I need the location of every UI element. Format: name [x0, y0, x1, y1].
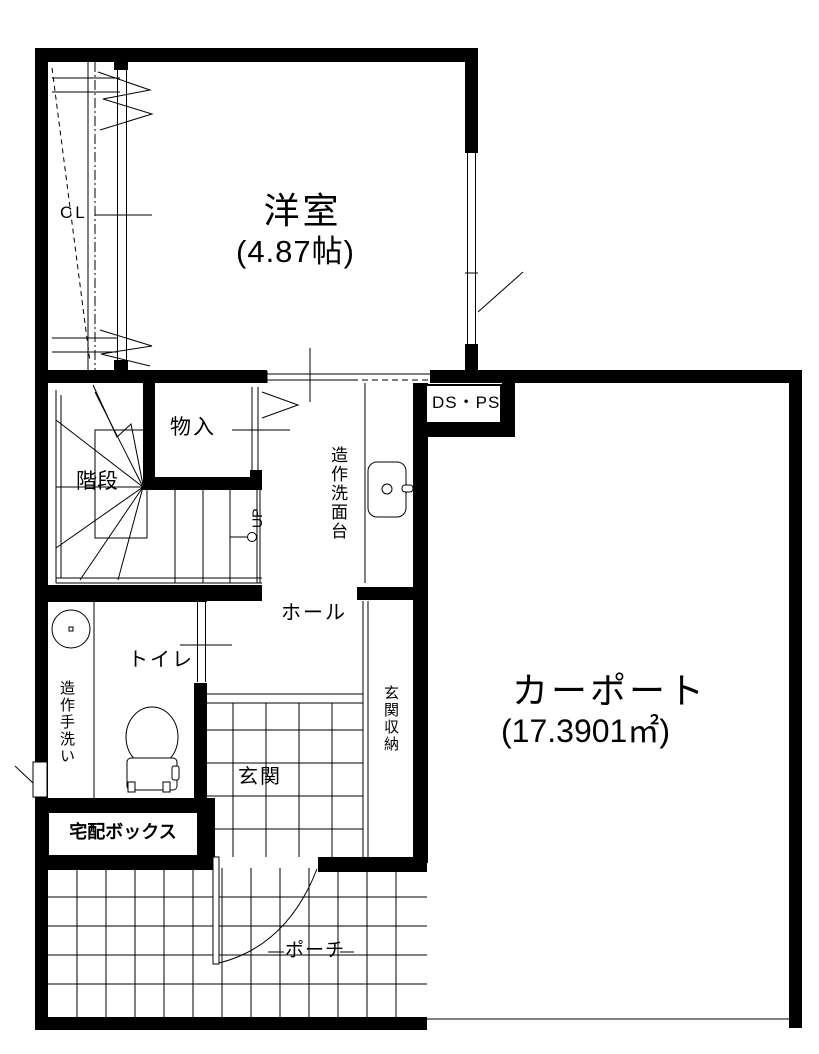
washstand-label: 造作洗面台 — [329, 446, 346, 541]
toilet-handle — [172, 766, 179, 780]
closet-label: CL — [60, 204, 88, 221]
toilet-door — [198, 600, 206, 682]
storage-folding-symbol — [262, 392, 298, 418]
wall-closet-stub-top — [114, 62, 128, 70]
stairs-up-label: UP — [250, 509, 264, 528]
wall-storage-left — [143, 383, 155, 490]
tile-grid-porch — [48, 868, 427, 1017]
washbasin-drain — [382, 484, 392, 494]
entrance-step-line — [207, 694, 363, 703]
carport-size: (17.3901㎡) — [501, 715, 670, 747]
toilet-window-leader — [15, 766, 33, 783]
toilet-side-window — [33, 762, 47, 797]
hand-wash-label: 造作手洗い — [59, 680, 74, 765]
western-room-size: (4.87帖) — [213, 236, 378, 267]
wall-dsps-bottom — [413, 423, 512, 437]
wall-storage-bottom — [143, 477, 262, 490]
wall-top — [35, 48, 478, 62]
room-window-cap-bottom — [465, 344, 478, 347]
hand-wash-drain — [69, 627, 73, 631]
toilet-foot-left — [128, 782, 135, 792]
wall-hall-right — [413, 383, 428, 863]
room-window — [465, 152, 478, 345]
wall-mid-left — [35, 370, 267, 383]
floor-plan: CL 洋室 (4.87帖) 物入 階段 造作洗面台 DS・PS UP ホール ト… — [0, 0, 819, 1054]
storage-label: 物入 — [170, 417, 216, 438]
wall-carport-right — [789, 370, 802, 1028]
wall-carport-top — [430, 370, 802, 383]
wall-front-right — [318, 857, 427, 872]
room-window-cap-top — [465, 150, 478, 153]
walls — [35, 48, 802, 1030]
sliding-door — [267, 374, 430, 380]
hall-label: ホール — [281, 603, 347, 623]
window-leader — [478, 272, 523, 312]
folding-door-symbol-top — [98, 72, 152, 130]
wall-room-right-upper — [465, 48, 478, 152]
entrance-label: 玄関 — [238, 767, 282, 787]
wall-toilet-top — [35, 590, 207, 602]
carport-label: カーポート — [512, 673, 707, 709]
tile-grid-entrance — [207, 703, 363, 857]
sliding-door-centerline — [267, 348, 310, 402]
wall-storage-door-stub — [250, 470, 262, 477]
wall-toilet-right — [194, 683, 207, 800]
wall-left — [35, 48, 48, 1030]
wall-washroom-bar — [357, 587, 415, 600]
closet-partition — [118, 62, 127, 370]
entrance-storage-label: 玄関収納 — [383, 685, 398, 753]
up-marker — [248, 533, 257, 542]
front-door-leaf — [213, 857, 219, 964]
entrance-storage-line — [363, 601, 368, 857]
wall-closet-stub-bottom — [114, 360, 128, 370]
washbasin-faucet — [402, 485, 413, 492]
wall-bottom — [35, 1017, 427, 1030]
floor-plan-drawing — [0, 0, 819, 1054]
toilet-label: トイレ — [128, 650, 194, 670]
western-room-label: 洋室 — [230, 193, 375, 229]
storage-door — [252, 387, 258, 470]
toilet-foot-right — [163, 782, 170, 792]
porch-label: ポーチ — [285, 941, 345, 960]
ds-ps-label: DS・PS — [432, 394, 500, 411]
delivery-box-label: 宅配ボックス — [48, 823, 198, 841]
stairs-label: 階段 — [76, 471, 118, 492]
